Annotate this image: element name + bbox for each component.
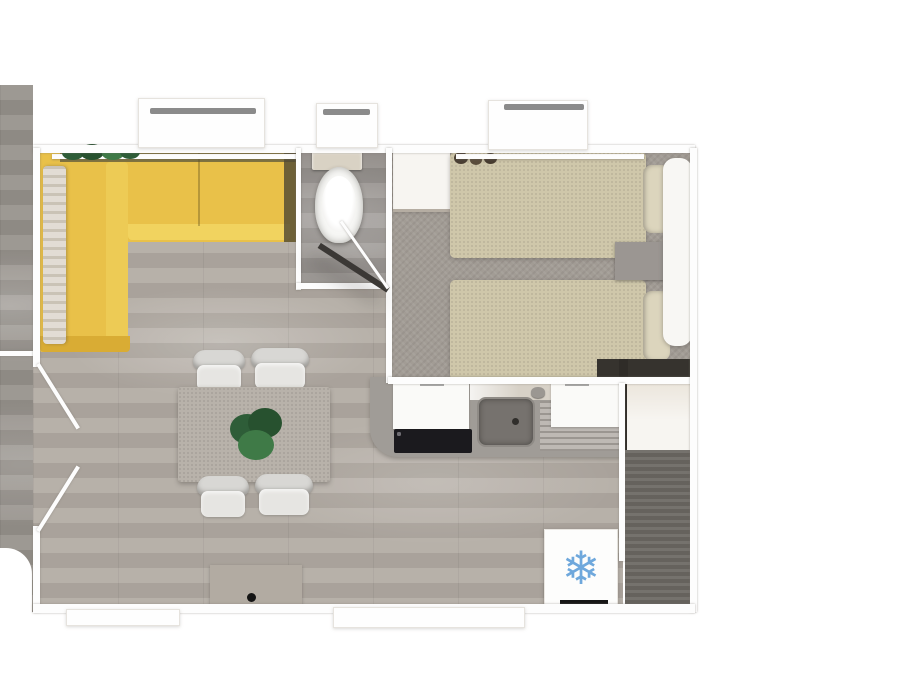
window-bathroom-frame-bar xyxy=(323,109,370,115)
bathroom-wall-left xyxy=(296,148,301,290)
window-living-frame-bar xyxy=(150,108,256,114)
sink-faucet xyxy=(531,387,545,398)
window-living xyxy=(138,98,265,148)
chair-seat xyxy=(255,363,305,389)
sofa-armrest xyxy=(43,166,66,344)
deck-floor xyxy=(0,85,33,612)
window-bottom-center xyxy=(333,607,525,628)
dining-chair-bottom-right xyxy=(255,474,313,518)
hob-burner xyxy=(397,432,401,436)
kitchen-cabinet-right xyxy=(551,381,623,427)
plant-leaf xyxy=(238,430,274,460)
sofa-chaise-edge xyxy=(106,162,128,342)
sofa-front-edge xyxy=(128,224,290,240)
sofa-side-shadow xyxy=(284,150,296,242)
sink-drain xyxy=(512,418,519,425)
right-wardrobe-cabinet xyxy=(627,384,690,450)
chair-seat xyxy=(201,491,245,517)
cabinet-knob xyxy=(247,593,256,602)
storage-wall-west xyxy=(619,383,625,561)
gas-hob xyxy=(394,429,472,453)
dining-chair-bottom-left xyxy=(197,476,249,518)
storage-room-floor xyxy=(625,450,690,612)
bedroom-wall-west xyxy=(386,148,392,383)
chair-seat xyxy=(259,489,309,515)
tv-cabinet xyxy=(210,565,302,608)
nightstand xyxy=(615,242,665,280)
toilet-seat xyxy=(322,176,356,232)
floor-plan-render: ❄ xyxy=(0,0,900,675)
bedroom-wardrobe-edge xyxy=(393,209,450,212)
sofa-cushion-seam xyxy=(198,150,200,226)
table-plant xyxy=(224,406,288,464)
left-wall-lower xyxy=(33,526,40,612)
window-bottom-left xyxy=(66,609,180,626)
snowflake-icon: ❄ xyxy=(562,545,601,591)
bedroom-wall-south xyxy=(388,377,694,384)
kitchen-cabinet-left xyxy=(393,381,469,429)
left-wall-upper xyxy=(33,148,40,367)
bedroom-windowsill-rail xyxy=(456,154,644,159)
bed-headboard xyxy=(663,158,692,346)
fridge: ❄ xyxy=(544,529,618,606)
kitchen-sink xyxy=(477,397,535,447)
bedroom-wardrobe xyxy=(393,148,450,211)
window-bedroom-frame-bar xyxy=(504,104,584,110)
right-wall xyxy=(690,148,697,612)
